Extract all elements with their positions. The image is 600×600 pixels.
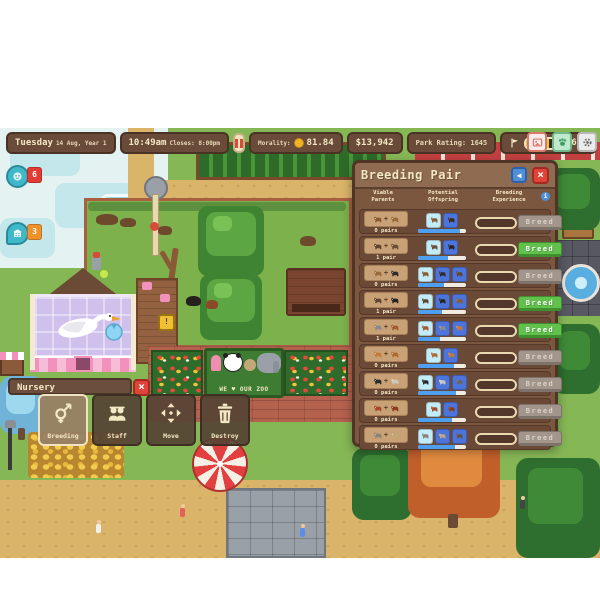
zoo-sign-text: WE ♥ OUR ZOO [207, 386, 281, 393]
flamingo-icon [211, 355, 221, 371]
parent-pair-chip[interactable]: + [364, 346, 408, 362]
gear-icon [582, 137, 593, 148]
breeding-experience-bar [475, 433, 517, 445]
screenshot-icon [532, 137, 543, 148]
breeding-experience-bar [475, 352, 517, 364]
viable-pairs-count: 1 pair [376, 255, 396, 261]
animal-silhouette-icon [454, 377, 464, 387]
parent-pair-chip[interactable]: + [364, 373, 408, 389]
close-panel-button[interactable]: × [532, 167, 549, 184]
screenshot-button[interactable] [527, 132, 547, 152]
notification-count-badge: 3 [27, 224, 42, 240]
gender-breeding-icon [52, 402, 74, 432]
zoopedia-button[interactable] [552, 132, 572, 152]
viable-pairs-count: 0 pairs [374, 282, 397, 288]
viable-pairs-count: 1 pair [376, 309, 396, 315]
animal-silhouette-icon [454, 323, 464, 333]
animal-silhouette-icon [389, 241, 400, 252]
move-arrows-icon [160, 402, 182, 432]
parent-pair-chip[interactable]: + [364, 292, 408, 308]
offspring-diversity-bar [418, 418, 466, 422]
animal-silhouette-icon [454, 269, 464, 279]
breeding-row: +0 pairsBreed [359, 398, 551, 423]
animal-silhouette-icon [454, 431, 464, 441]
offspring-chip[interactable] [426, 402, 441, 417]
animal-silhouette-icon [437, 431, 447, 441]
breeding-panel-title: Breeding Pair [361, 168, 461, 182]
animal-silhouette-icon [372, 349, 383, 360]
offspring-chip[interactable] [452, 375, 467, 390]
parent-pair-chip[interactable]: + [364, 211, 408, 227]
nursery-dome-building[interactable] [30, 268, 136, 380]
parent-pair-chip[interactable]: + [364, 427, 408, 443]
notification-count-badge: 6 [27, 167, 42, 183]
animal-silhouette-icon [372, 268, 383, 279]
breeding-row: +0 pairsBreed [359, 425, 551, 450]
column-header: Potential Offspring [411, 190, 475, 204]
pennant-flag-icon [509, 137, 521, 149]
offspring-diversity-bar [418, 391, 466, 395]
nursery-button-destroy[interactable]: Destroy [200, 394, 250, 446]
breed-button[interactable]: Breed [518, 404, 562, 419]
animal-silhouette-icon [389, 295, 400, 306]
map-marker[interactable]: 3 [6, 222, 40, 242]
animal-silhouette-icon [429, 404, 439, 414]
warning-sign: ! [158, 314, 175, 331]
animal-silhouette-icon [454, 296, 464, 306]
parent-pair-chip[interactable]: + [364, 238, 408, 254]
offspring-diversity-bar [418, 337, 466, 341]
animal-silhouette-icon [437, 269, 447, 279]
viable-pairs-count: 0 pairs [374, 363, 397, 369]
park-rating-value: Park Rating: 1645 [416, 139, 488, 147]
nursery-button-label: Breeding [47, 432, 78, 440]
offspring-chip[interactable] [443, 240, 458, 255]
nursery-button-label: Move [163, 432, 179, 440]
breeding-row: +1 pairBreed [359, 236, 551, 261]
animal-silhouette-icon [420, 296, 430, 306]
screenshot-page: ! WE ♥ OUR ZOO [0, 0, 600, 600]
breeding-experience-bar [475, 271, 517, 283]
animal-silhouette-icon [372, 214, 383, 225]
offspring-chip[interactable] [418, 321, 433, 336]
trash-destroy-icon [214, 402, 236, 432]
animal-silhouette-icon [372, 322, 383, 333]
sloth-icon [244, 359, 256, 371]
column-header: Breeding Experience [477, 190, 541, 204]
breeding-row: +1 pairBreed [359, 290, 551, 315]
morality-value: 81.84 [307, 138, 334, 148]
date-box: Tuesday 14 Aug, Year 1 [6, 132, 116, 154]
nursery-button-label: Staff [107, 432, 127, 440]
viable-pairs-count: 1 pair [376, 336, 396, 342]
tree [352, 448, 412, 520]
animal-silhouette-icon [372, 241, 383, 252]
animal-silhouette-icon [420, 431, 430, 441]
column-header: Viable Parents [359, 190, 407, 204]
animal-silhouette-icon [437, 323, 447, 333]
viable-pairs-count: 0 pairs [374, 444, 397, 450]
animal-silhouette-icon [446, 215, 456, 225]
offspring-diversity-bar [418, 364, 466, 368]
breeding-experience-bar [475, 217, 517, 229]
pause-icon [235, 139, 238, 148]
breed-button[interactable]: Breed [518, 323, 562, 338]
back-button[interactable]: ◀ [511, 167, 527, 183]
settings-button[interactable] [577, 132, 597, 152]
offspring-chip[interactable] [452, 429, 467, 444]
animal-silhouette-icon [446, 242, 456, 252]
we-love-our-zoo-sign: WE ♥ OUR ZOO [204, 348, 284, 398]
offspring-chip[interactable] [426, 213, 441, 228]
staff-people-icon [106, 402, 128, 432]
offspring-chip[interactable] [435, 375, 450, 390]
closing-time: Closes: 8:00pm [169, 140, 220, 147]
viable-pairs-count: 0 pairs [374, 228, 397, 234]
nursery-button-breeding[interactable]: Breeding [38, 394, 88, 446]
breeding-experience-bar [475, 325, 517, 337]
breed-button[interactable]: Breed [518, 296, 562, 311]
breeding-row: +0 pairsBreed [359, 209, 551, 234]
offspring-chip[interactable] [418, 294, 433, 309]
offspring-chip[interactable] [426, 348, 441, 363]
tree [516, 458, 600, 558]
animal-silhouette-icon [372, 295, 383, 306]
breeding-column-headers: Viable ParentsPotential OffspringBreedin… [355, 189, 555, 207]
tree [198, 206, 264, 276]
breed-button[interactable]: Breed [518, 377, 562, 392]
animal-silhouette-icon [429, 350, 439, 360]
animal-silhouette-icon [389, 403, 400, 414]
stork-icon [40, 302, 126, 352]
breed-button[interactable]: Breed [518, 242, 562, 257]
info-icon[interactable]: i [541, 192, 550, 201]
parent-pair-chip[interactable]: + [364, 400, 408, 416]
offspring-diversity-bar [418, 310, 466, 314]
breeding-pair-panel: Breeding Pair ◀ × Viable ParentsPotentia… [352, 160, 558, 447]
nursery-button-label: Destroy [211, 432, 238, 440]
building-marker [12, 228, 23, 239]
nursery-button-move[interactable]: Move [146, 394, 196, 446]
offspring-chip[interactable] [418, 429, 433, 444]
date-label: 14 Aug, Year 1 [56, 140, 107, 147]
animal-silhouette-icon [420, 377, 430, 387]
paw-icon [557, 137, 568, 148]
animal-silhouette-icon [389, 214, 400, 225]
animal-silhouette-icon [429, 215, 439, 225]
animal-silhouette-icon [372, 430, 383, 441]
morality-label: Morality: [258, 140, 291, 147]
nursery-toolbar: BreedingStaffMoveDestroy [38, 394, 250, 446]
kiosk-stall [0, 352, 24, 376]
breeding-rows-list: +0 pairsBreed+1 pairBreed+0 pairsBreed+1… [359, 209, 551, 440]
nursery-title-box: Nursery [8, 378, 132, 395]
current-time: 10:49am [129, 138, 167, 148]
viable-pairs-count: 0 pairs [374, 417, 397, 423]
breeding-experience-bar [475, 298, 517, 310]
parent-pair-chip[interactable]: + [364, 319, 408, 335]
weekday-label: Tuesday [15, 138, 53, 148]
offspring-chip[interactable] [443, 348, 458, 363]
top-hud-bar: Tuesday 14 Aug, Year 1 10:49am Closes: 8… [0, 131, 600, 155]
breed-button[interactable]: Breed [518, 269, 562, 284]
animal-silhouette-icon [420, 323, 430, 333]
breeding-experience-bar [475, 244, 517, 256]
viable-pairs-count: 0 pairs [374, 390, 397, 396]
animal-silhouette-icon [429, 242, 439, 252]
animal-silhouette-icon [446, 350, 456, 360]
offspring-chip[interactable] [443, 402, 458, 417]
money-value: $13,942 [356, 138, 394, 148]
animal-silhouette-icon [437, 296, 447, 306]
offspring-chip[interactable] [435, 321, 450, 336]
offspring-chip[interactable] [435, 294, 450, 309]
breeding-experience-bar [475, 406, 517, 418]
breeding-row: +0 pairsBreed [359, 371, 551, 396]
park-rating-box: Park Rating: 1645 [407, 132, 497, 154]
breed-button[interactable]: Breed [518, 215, 562, 230]
animal-silhouette-icon [420, 269, 430, 279]
breed-button[interactable]: Breed [518, 431, 562, 446]
animal-silhouette-icon [389, 376, 400, 387]
breeding-panel-header: Breeding Pair ◀ × [355, 163, 555, 189]
morality-coin-icon [294, 138, 304, 148]
offspring-diversity-bar [418, 445, 466, 449]
offspring-diversity-bar [418, 256, 466, 260]
animal-silhouette-icon [389, 430, 400, 441]
animal-silhouette-icon [437, 377, 447, 387]
stone-entrance-path [226, 488, 326, 558]
offspring-chip[interactable] [452, 267, 467, 282]
breeding-row: +0 pairsBreed [359, 263, 551, 288]
offspring-diversity-bar [418, 229, 466, 233]
animal-silhouette-icon [372, 403, 383, 414]
animal-silhouette-icon [446, 404, 456, 414]
time-box: 10:49am Closes: 8:00pm [120, 132, 230, 154]
offspring-chip[interactable] [435, 429, 450, 444]
map-marker[interactable]: 6 [6, 165, 40, 185]
fountain [562, 264, 600, 302]
breeding-row: +0 pairsBreed [359, 344, 551, 369]
money-box: $13,942 [347, 132, 403, 154]
pause-button[interactable] [233, 133, 245, 153]
parent-pair-chip[interactable]: + [364, 265, 408, 281]
lamp-post [8, 428, 12, 470]
breeding-row: +1 pairBreed [359, 317, 551, 342]
offspring-chip[interactable] [452, 321, 467, 336]
animal-silhouette-icon [389, 268, 400, 279]
offspring-chip[interactable] [452, 294, 467, 309]
breed-button[interactable]: Breed [518, 350, 562, 365]
animal-silhouette-icon [372, 376, 383, 387]
game-viewport: ! WE ♥ OUR ZOO [0, 128, 600, 558]
morality-box: Morality: 81.84 [249, 132, 343, 154]
breeding-experience-bar [475, 379, 517, 391]
animal-silhouette-icon [389, 322, 400, 333]
animal-face-marker [12, 171, 23, 182]
quick-buttons [527, 132, 597, 152]
offspring-diversity-bar [418, 283, 466, 287]
offspring-chip[interactable] [418, 267, 433, 282]
animal-silhouette-icon [389, 349, 400, 360]
offspring-chip[interactable] [418, 375, 433, 390]
nursery-button-staff[interactable]: Staff [92, 394, 142, 446]
offspring-chip[interactable] [443, 213, 458, 228]
offspring-chip[interactable] [426, 240, 441, 255]
offspring-chip[interactable] [435, 267, 450, 282]
